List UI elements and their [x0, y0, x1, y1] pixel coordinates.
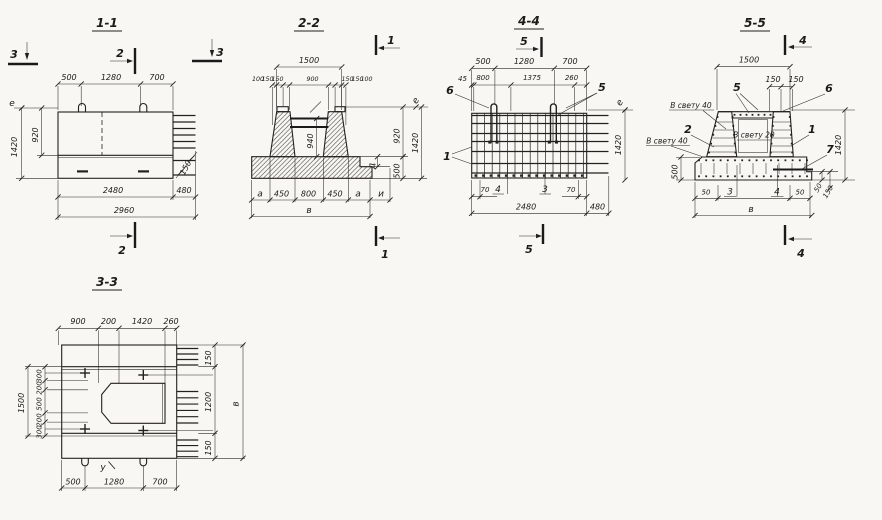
cut-label: 2 [116, 47, 124, 60]
bar-mark-7: 7 [826, 143, 834, 156]
cut-marker-4-bottom: 4 [785, 225, 812, 260]
dim-1200: 1200 [204, 392, 213, 412]
bar-mark-6: 6 [446, 84, 454, 97]
slab-mark [138, 170, 149, 172]
dim-500: 500 [475, 57, 490, 66]
bar-mark-6: 6 [825, 82, 833, 95]
dim-480: 480 [176, 186, 191, 195]
dim-700: 700 [152, 478, 167, 487]
cut-marker-1-bottom: 1 [376, 226, 400, 261]
block-elevation-outline [58, 104, 173, 179]
dim-1280: 1280 [101, 73, 121, 82]
cut-label: 3 [216, 46, 224, 59]
dim-150: 150 [765, 75, 780, 84]
dim-300: 300 [36, 369, 44, 383]
loop-mark [109, 462, 116, 470]
bar-mark-4: 4 [495, 185, 501, 195]
cut-marker-3-left: 3 [8, 42, 38, 64]
left-lip [277, 107, 288, 112]
letter-v: в [232, 401, 242, 406]
dim-1420: 1420 [834, 135, 843, 155]
cut-marker-1-top: 1 [376, 34, 400, 55]
bar-mark-5: 5 [733, 81, 741, 94]
dim-260: 260 [565, 74, 579, 82]
dim-150: 150 [204, 440, 213, 455]
dim-50: 50 [813, 182, 825, 194]
dim-200: 200 [36, 413, 44, 427]
cut-label: 1 [387, 34, 395, 47]
bar-mark-4: 4 [774, 188, 780, 198]
cut-label: 5 [520, 35, 528, 48]
dim-500: 500 [393, 163, 402, 178]
dim-480: 480 [590, 203, 605, 212]
lifting-loop [79, 104, 86, 112]
letter-i: и [378, 190, 384, 200]
bar-mark-3: 3 [542, 185, 548, 195]
dim-70: 70 [481, 186, 490, 194]
cage-bars [472, 113, 609, 178]
bar-mark-1: 1 [443, 150, 451, 163]
dim-200: 200 [36, 381, 44, 395]
dim-150: 150 [271, 76, 283, 83]
loop-crosses [45, 368, 213, 436]
note-clear-40: В свету 40 [670, 101, 712, 110]
dim-50: 50 [702, 189, 711, 197]
section-view-3-3: 3-3 900 200 1420 260 1500 300 200 500 20… [17, 275, 246, 491]
cut-marker-2-top: 2 [110, 47, 135, 74]
dim-1420: 1420 [10, 137, 19, 157]
note-clear-20: В свету 20 [733, 131, 775, 140]
dim-260: 260 [163, 317, 178, 326]
view-title: 4-4 [517, 14, 540, 28]
dim-70: 70 [567, 186, 576, 194]
dim-2480: 2480 [516, 203, 536, 212]
cut-marker-4-top: 4 [785, 34, 812, 55]
letter-d: д [368, 163, 378, 170]
letter-e: е [411, 96, 423, 106]
lifting-loop [140, 458, 147, 466]
view-title: 5-5 [744, 16, 766, 30]
cut-label: 2 [118, 244, 126, 257]
letter-v: в [306, 206, 311, 216]
leaders [452, 93, 633, 194]
dim-1500: 1500 [739, 56, 759, 65]
dim-1280: 1280 [104, 478, 124, 487]
dim-1420: 1420 [132, 317, 152, 326]
dim-700: 700 [562, 57, 577, 66]
letter-a: а [257, 190, 263, 200]
letter-e: е [615, 98, 627, 108]
dim-100: 100 [360, 76, 372, 83]
dim-500: 500 [61, 73, 76, 82]
cut-marker-5-top: 5 [516, 35, 542, 57]
dim-500: 500 [671, 164, 680, 179]
cut-label: 1 [381, 248, 389, 261]
section-view-2-2: 2-2 1 1 1500 100 150 150 900 150 150 100… [249, 16, 428, 261]
cut-label: 5 [525, 243, 533, 256]
section-view-4-4: 4-4 5 5 500 1280 700 45 800 1375 260 6 5… [443, 14, 633, 256]
dim-1375: 1375 [523, 74, 541, 82]
leader [310, 102, 321, 113]
dim-800: 800 [476, 74, 490, 82]
lifting-loop [82, 458, 89, 466]
cut-label: 3 [10, 48, 18, 61]
dim-900: 900 [306, 76, 318, 83]
blueprint-page: 1-1 3 3 2 2 500 1280 700 е 1420 920 150 [0, 0, 882, 520]
dim-150: 150 [178, 159, 193, 177]
cut-marker-3-right: 3 [192, 39, 224, 61]
dim-300: 300 [36, 425, 44, 439]
dim-800: 800 [301, 190, 316, 199]
letter-u: у [99, 463, 106, 473]
dim-200: 200 [101, 317, 116, 326]
bar-mark-3: 3 [727, 188, 733, 198]
cut-marker-2-bottom: 2 [110, 222, 135, 257]
drawing-canvas: 1-1 3 3 2 2 500 1280 700 е 1420 920 150 [0, 0, 882, 520]
channel-opening [102, 383, 165, 423]
protruding-bars [177, 349, 199, 457]
dim-450: 450 [327, 190, 342, 199]
letter-v: в [748, 205, 753, 215]
section-view-5-5: 5-5 4 4 1500 150 150 5 6 В свету 40 [646, 16, 855, 260]
dim-900: 900 [70, 317, 85, 326]
view-title: 3-3 [96, 275, 118, 289]
dim-150: 150 [204, 350, 213, 365]
dim-2480: 2480 [103, 186, 123, 195]
note-clear-40: В свету 40 [646, 137, 688, 146]
dim-700: 700 [149, 73, 164, 82]
dimensions [14, 81, 198, 220]
dim-1420: 1420 [614, 135, 623, 155]
dim-45: 45 [458, 75, 467, 83]
bar-mark-2: 2 [684, 123, 692, 136]
letter-a: а [355, 190, 361, 200]
dim-450: 450 [274, 190, 289, 199]
bar-mark-5: 5 [598, 81, 606, 94]
dim-920: 920 [31, 127, 40, 142]
view-title: 1-1 [96, 16, 118, 30]
dim-1500: 1500 [17, 393, 26, 413]
dim-50: 50 [796, 189, 805, 197]
dim-1420: 1420 [411, 133, 420, 153]
dim-1500: 1500 [299, 56, 319, 65]
dim-1280: 1280 [514, 57, 534, 66]
view-title: 2-2 [298, 16, 320, 30]
cut-marker-5-bottom: 5 [519, 224, 543, 256]
letter-e: е [9, 99, 15, 109]
right-lip [335, 107, 345, 112]
dim-500: 500 [36, 397, 44, 411]
dim-150: 150 [788, 75, 803, 84]
dim-920: 920 [393, 128, 402, 143]
slab-mark [77, 170, 88, 172]
cut-label: 4 [798, 34, 807, 47]
dim-940: 940 [306, 133, 315, 148]
dim-500: 500 [65, 478, 80, 487]
bar-mark-1: 1 [808, 123, 816, 136]
section-view-1-1: 1-1 3 3 2 2 500 1280 700 е 1420 920 150 [8, 16, 224, 257]
dim-2960: 2960 [114, 206, 134, 215]
cut-label: 4 [796, 247, 805, 260]
